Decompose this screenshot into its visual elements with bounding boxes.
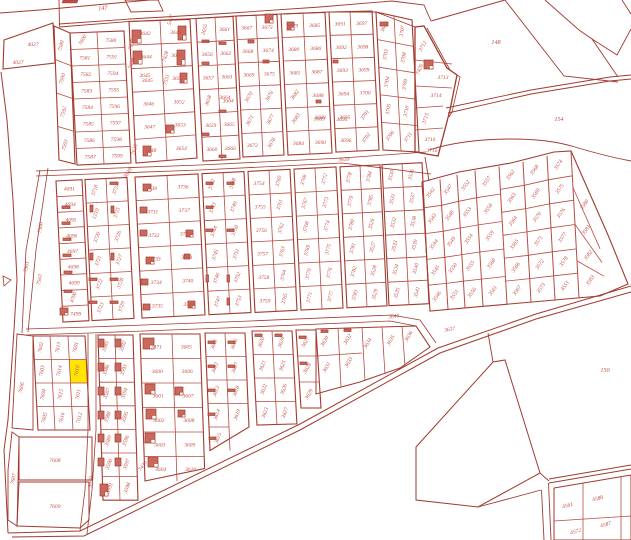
- svg-text:7584: 7584: [82, 104, 93, 111]
- svg-text:3684: 3684: [292, 140, 304, 147]
- svg-text:3731: 3731: [146, 210, 158, 216]
- svg-text:3668: 3668: [241, 49, 253, 55]
- svg-text:7597: 7597: [110, 121, 121, 127]
- svg-text:3736: 3736: [177, 185, 189, 191]
- svg-text:3699: 3699: [357, 68, 369, 74]
- svg-text:3713: 3713: [437, 75, 449, 81]
- svg-text:7585: 7585: [83, 122, 94, 128]
- svg-text:3659: 3659: [204, 123, 216, 129]
- svg-text:3680: 3680: [287, 47, 299, 53]
- svg-text:3666: 3666: [224, 146, 236, 152]
- svg-text:3697: 3697: [355, 21, 367, 27]
- svg-text:3738: 3738: [179, 232, 191, 238]
- svg-text:3695: 3695: [336, 117, 348, 123]
- svg-text:7586: 7586: [84, 138, 95, 144]
- svg-text:3645: 3645: [139, 72, 151, 79]
- svg-text:3733: 3733: [149, 257, 161, 263]
- svg-text:3674: 3674: [262, 47, 274, 54]
- svg-text:3603: 3603: [153, 442, 165, 448]
- svg-text:3741: 3741: [182, 301, 194, 308]
- svg-text:3653: 3653: [174, 123, 186, 129]
- svg-text:7591: 7591: [106, 55, 117, 61]
- svg-text:3685: 3685: [308, 23, 320, 29]
- svg-text:3689: 3689: [314, 115, 326, 121]
- svg-text:3656: 3656: [201, 52, 213, 58]
- svg-text:3759: 3759: [258, 298, 270, 304]
- svg-text:7582: 7582: [80, 72, 91, 78]
- svg-text:3639: 3639: [337, 157, 350, 164]
- svg-text:7499: 7499: [70, 311, 81, 318]
- svg-text:3650: 3650: [170, 53, 182, 59]
- svg-text:3735: 3735: [151, 304, 163, 310]
- svg-text:3664: 3664: [219, 94, 231, 101]
- svg-text:3665: 3665: [223, 122, 235, 128]
- svg-text:3601: 3601: [152, 393, 164, 399]
- svg-text:4697: 4697: [67, 248, 78, 255]
- svg-text:150: 150: [600, 367, 610, 374]
- svg-text:3675: 3675: [263, 72, 275, 78]
- svg-text:3600: 3600: [151, 369, 163, 375]
- svg-text:3700: 3700: [359, 91, 371, 97]
- svg-text:3610: 3610: [184, 467, 196, 473]
- svg-text:3692: 3692: [335, 45, 347, 51]
- svg-text:3686: 3686: [309, 46, 321, 52]
- svg-text:3649: 3649: [169, 29, 181, 36]
- svg-text:3609: 3609: [183, 442, 195, 448]
- svg-text:3755: 3755: [254, 204, 266, 210]
- svg-text:3608: 3608: [182, 418, 194, 424]
- svg-text:7598: 7598: [111, 137, 122, 143]
- svg-text:4027: 4027: [13, 59, 24, 66]
- svg-text:7471: 7471: [151, 343, 162, 350]
- svg-text:3667: 3667: [240, 26, 252, 32]
- svg-text:3740: 3740: [181, 278, 193, 285]
- svg-text:3661: 3661: [218, 27, 230, 33]
- svg-text:3737: 3737: [178, 208, 190, 214]
- svg-text:3606: 3606: [181, 369, 193, 375]
- svg-text:3663: 3663: [220, 75, 232, 81]
- svg-text:4698: 4698: [68, 264, 79, 271]
- svg-text:3681: 3681: [288, 71, 300, 77]
- svg-text:7599: 7599: [112, 153, 123, 159]
- svg-text:3660: 3660: [205, 147, 217, 153]
- svg-text:7581: 7581: [79, 56, 90, 62]
- svg-text:3651: 3651: [171, 76, 183, 82]
- svg-text:3657: 3657: [202, 76, 214, 82]
- svg-text:7609: 7609: [50, 504, 61, 510]
- svg-text:3662: 3662: [219, 51, 231, 57]
- svg-text:3696: 3696: [339, 138, 351, 144]
- svg-text:147: 147: [98, 5, 109, 13]
- svg-text:4027: 4027: [28, 41, 39, 48]
- svg-text:3688: 3688: [312, 93, 324, 99]
- svg-text:3604: 3604: [154, 466, 166, 473]
- svg-text:7583: 7583: [81, 89, 92, 95]
- svg-text:3602: 3602: [152, 418, 164, 424]
- svg-text:4695: 4695: [65, 217, 76, 224]
- svg-text:3644: 3644: [140, 53, 152, 60]
- svg-text:3714: 3714: [430, 92, 442, 99]
- svg-text:3716: 3716: [424, 137, 436, 143]
- svg-text:3654: 3654: [175, 145, 187, 152]
- svg-text:3646: 3646: [142, 100, 154, 107]
- svg-text:4691: 4691: [64, 185, 75, 192]
- svg-text:4696: 4696: [66, 232, 77, 239]
- svg-text:3732: 3732: [147, 233, 159, 239]
- svg-text:3739: 3739: [180, 255, 192, 261]
- svg-text:3758: 3758: [257, 275, 269, 281]
- svg-text:4699: 4699: [69, 279, 80, 286]
- svg-text:7608: 7608: [50, 458, 61, 464]
- svg-text:3757: 3757: [256, 251, 268, 257]
- svg-text:3691: 3691: [334, 22, 346, 28]
- svg-text:7594: 7594: [107, 70, 118, 77]
- svg-text:3642: 3642: [139, 30, 151, 37]
- svg-text:3672: 3672: [246, 143, 258, 149]
- svg-text:3669: 3669: [242, 73, 254, 79]
- svg-text:3652: 3652: [173, 99, 185, 105]
- svg-text:3687: 3687: [310, 70, 322, 76]
- svg-text:3734: 3734: [150, 279, 162, 286]
- svg-text:148: 148: [491, 39, 501, 46]
- svg-text:7596: 7596: [109, 104, 120, 110]
- svg-text:3673: 3673: [261, 25, 273, 31]
- svg-text:7580: 7580: [105, 38, 116, 44]
- svg-text:3754: 3754: [253, 180, 265, 187]
- svg-text:7595: 7595: [108, 88, 119, 94]
- svg-text:3648: 3648: [144, 147, 156, 154]
- svg-text:154: 154: [554, 116, 563, 123]
- svg-text:3693: 3693: [336, 68, 348, 74]
- svg-text:3698: 3698: [356, 44, 368, 50]
- svg-text:4694: 4694: [65, 201, 76, 208]
- svg-text:3647: 3647: [143, 124, 155, 131]
- svg-text:3690: 3690: [314, 140, 326, 146]
- svg-text:3679: 3679: [286, 24, 298, 30]
- svg-text:3607: 3607: [182, 393, 194, 399]
- svg-text:7587: 7587: [85, 154, 96, 160]
- svg-text:3694: 3694: [337, 91, 349, 98]
- svg-text:3605: 3605: [180, 344, 192, 350]
- svg-text:3730: 3730: [145, 186, 157, 192]
- svg-text:3756: 3756: [255, 228, 267, 234]
